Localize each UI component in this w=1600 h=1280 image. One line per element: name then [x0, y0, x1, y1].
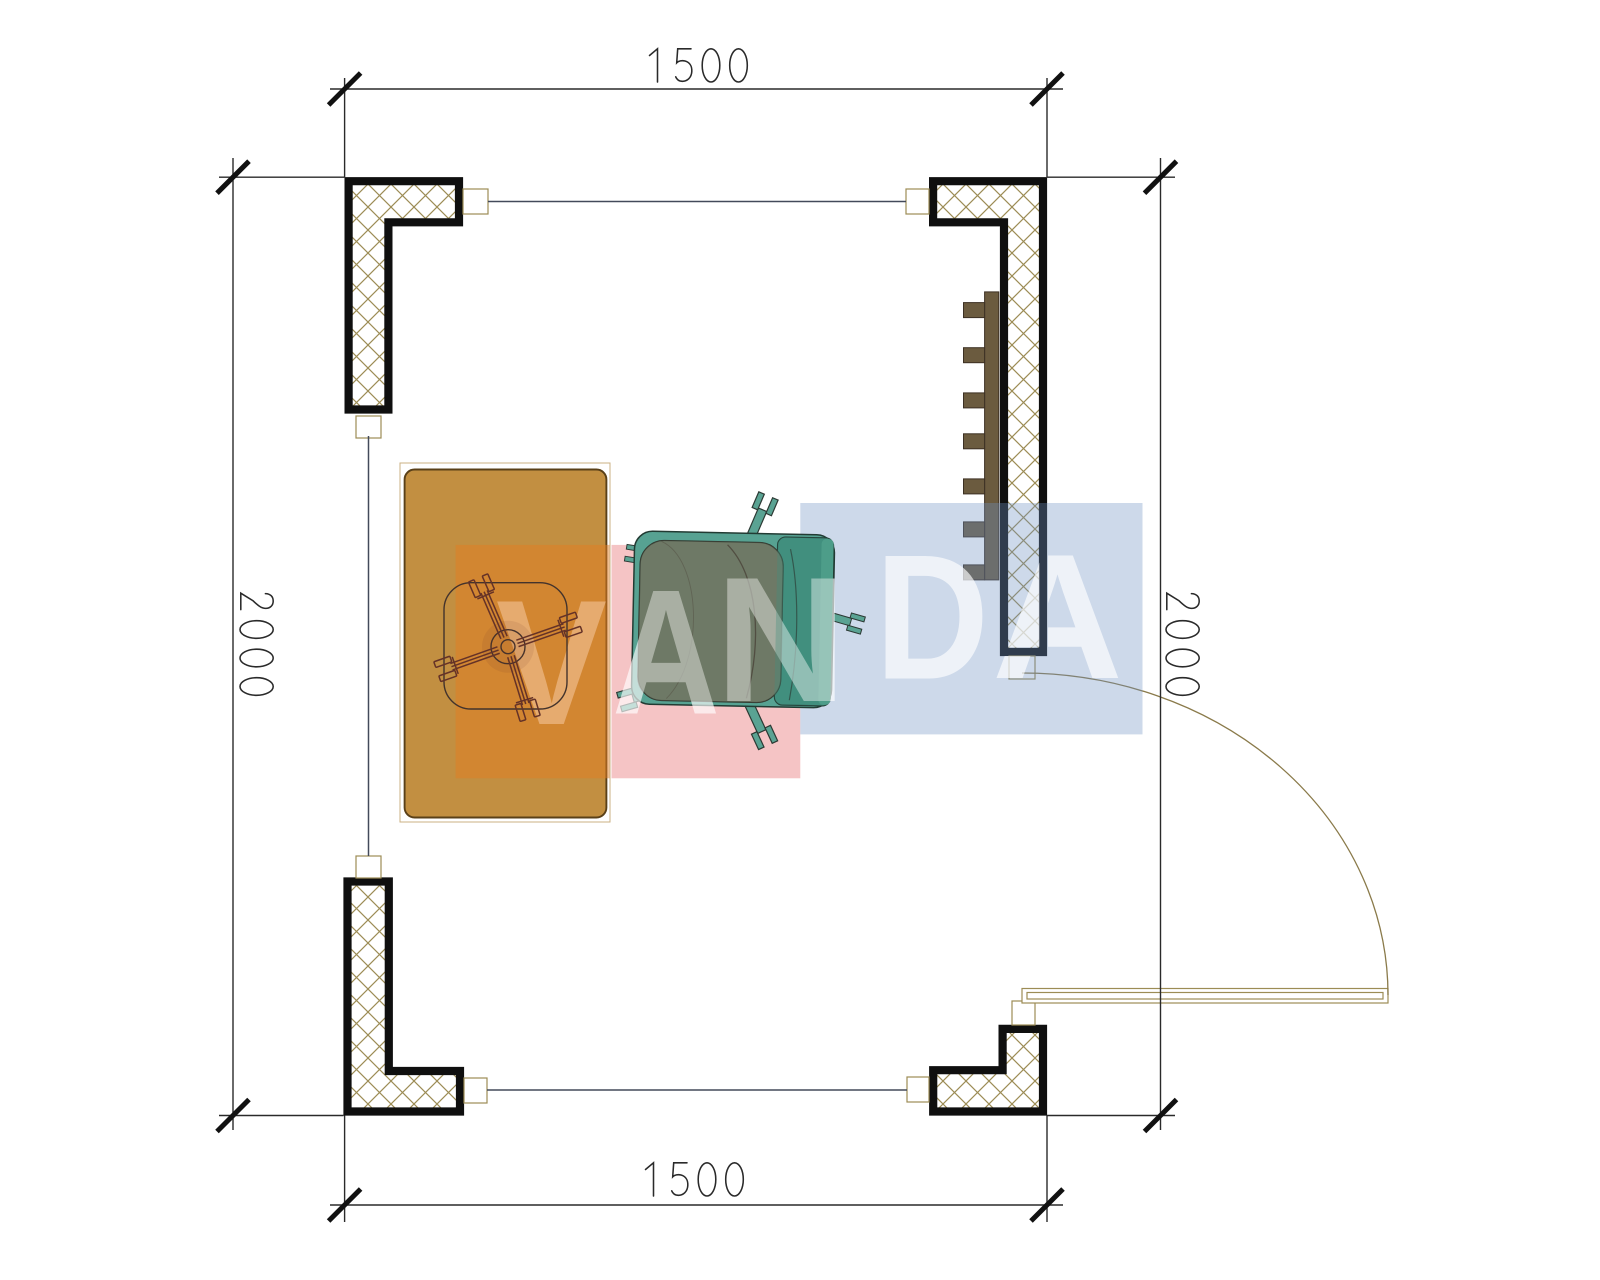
svg-text:D: D: [875, 518, 989, 717]
svg-text:A: A: [992, 517, 1123, 716]
